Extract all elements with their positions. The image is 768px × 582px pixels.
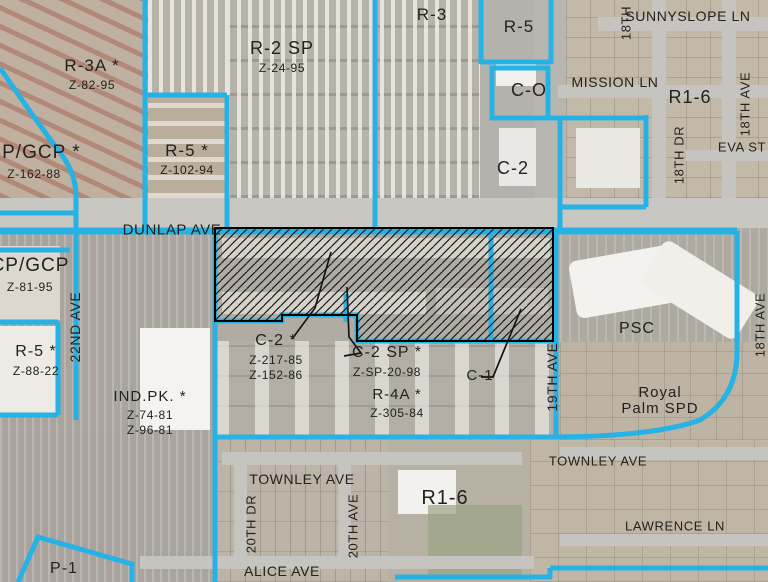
- zone-label-r-5-10: R-5 *Z-88-22: [13, 343, 59, 378]
- zone-name: IND.PK. *: [113, 389, 186, 405]
- street-label-townley-ave-10: TOWNLEY AVE: [249, 471, 354, 487]
- zone-name-line2: Palm SPD: [621, 401, 698, 417]
- street-label-22nd-ave-7: 22ND AVE: [67, 292, 83, 363]
- street-label-20th-ave-14: 20TH AVE: [346, 494, 361, 559]
- case-number: Z-152-86: [249, 368, 303, 383]
- zone-label-cp-gcp-9: CP/GCPZ-81-95: [0, 256, 69, 295]
- zone-name: R1-6: [421, 488, 468, 510]
- zone-name: C-O: [511, 81, 547, 100]
- case-number: Z-74-81: [113, 408, 186, 423]
- zone-name: C-1: [466, 368, 493, 384]
- street-label-mission-ln-2: MISSION LN: [572, 74, 659, 90]
- zone-case-numbers: Z-162-88: [0, 167, 81, 182]
- street-label-18th-1: 18TH: [619, 6, 634, 40]
- zone-case-numbers: Z-24-95: [250, 61, 314, 76]
- zone-name: R-5 *: [13, 343, 59, 360]
- map-labels: R-3A *Z-82-95CP/GCP *Z-162-88R-5 *Z-102-…: [0, 0, 768, 582]
- zone-label-c-2-7: C-2: [497, 159, 529, 178]
- zone-case-numbers: Z-102-94: [160, 163, 214, 178]
- zone-case-numbers: Z-88-22: [13, 364, 59, 379]
- zone-case-numbers: Z-305-84: [370, 406, 424, 421]
- zone-label-r-4a-14: R-4A *Z-305-84: [370, 387, 424, 421]
- zone-name: Royal: [621, 385, 698, 401]
- zone-name: R1-6: [668, 88, 711, 107]
- zone-case-numbers: Z-217-85Z-152-86: [249, 353, 303, 383]
- zone-name: R-3A *: [64, 57, 119, 75]
- zone-label-psc-16: PSC: [619, 320, 655, 337]
- street-label-sunnyslope-ln-0: SUNNYSLOPE LN: [625, 8, 750, 24]
- zone-name: CP/GCP: [0, 256, 69, 277]
- zone-label-r-3a-0: R-3A *Z-82-95: [64, 57, 119, 93]
- case-number: Z-82-95: [64, 78, 119, 93]
- street-label-19th-ave-8: 19TH AVE: [544, 342, 560, 411]
- case-number: Z-SP-20-98: [352, 365, 422, 380]
- zone-label-r-5-5: R-5: [504, 18, 534, 36]
- zone-name: P-1: [50, 560, 78, 577]
- zoning-map: R-3A *Z-82-95CP/GCP *Z-162-88R-5 *Z-102-…: [0, 0, 768, 582]
- zone-label-p-1-19: P-1: [50, 560, 78, 577]
- zone-name: PSC: [619, 320, 655, 337]
- case-number: Z-162-88: [0, 167, 81, 182]
- case-number: Z-102-94: [160, 163, 214, 178]
- zone-label-c-o-6: C-O: [511, 81, 547, 100]
- zone-name: C-2 SP *: [352, 344, 422, 361]
- street-label-eva-st-5: EVA ST: [718, 140, 766, 155]
- zone-label-r1-6-18: R1-6: [421, 488, 468, 510]
- street-label-dunlap-ave-6: DUNLAP AVE: [123, 222, 222, 239]
- zone-name: R-4A *: [370, 387, 424, 403]
- street-label-18th-ave-9: 18TH AVE: [753, 293, 768, 358]
- zone-label-c-2-sp-13: C-2 SP *Z-SP-20-98: [352, 344, 422, 379]
- street-label-townley-ave-11: TOWNLEY AVE: [549, 454, 647, 469]
- zone-label-cp-gcp-1: CP/GCP *Z-162-88: [0, 143, 81, 182]
- street-label-18th-dr-4: 18TH DR: [672, 126, 687, 184]
- zone-case-numbers: Z-SP-20-98: [352, 365, 422, 380]
- case-number: Z-88-22: [13, 364, 59, 379]
- zone-name: R-5 *: [160, 142, 214, 160]
- zone-case-numbers: Z-74-81Z-96-81: [113, 408, 186, 438]
- zone-case-numbers: Z-81-95: [0, 280, 69, 295]
- zone-name: R-2 SP: [250, 39, 314, 58]
- case-number: Z-81-95: [0, 280, 69, 295]
- street-label-18th-ave-3: 18TH AVE: [738, 72, 753, 137]
- street-label-20th-dr-13: 20TH DR: [244, 495, 259, 553]
- zone-name: R-5: [504, 18, 534, 36]
- zone-name: C-2: [497, 159, 529, 178]
- zone-name: C-2 *: [249, 332, 303, 349]
- street-label-lawrence-ln-12: LAWRENCE LN: [625, 519, 725, 534]
- zone-case-numbers: Z-82-95: [64, 78, 119, 93]
- zone-label-r-2-sp-3: R-2 SPZ-24-95: [250, 39, 314, 76]
- zone-name: CP/GCP *: [0, 143, 81, 164]
- case-number: Z-96-81: [113, 423, 186, 438]
- case-number: Z-217-85: [249, 353, 303, 368]
- zone-label-ind-pk-11: IND.PK. *Z-74-81Z-96-81: [113, 389, 186, 438]
- zone-name: R-3: [417, 6, 447, 24]
- zone-label-c-1-15: C-1: [466, 368, 493, 384]
- case-number: Z-24-95: [250, 61, 314, 76]
- zone-label-c-2-12: C-2 *Z-217-85Z-152-86: [249, 332, 303, 382]
- zone-label-r1-6-8: R1-6: [668, 88, 711, 107]
- zone-label-royal-17: RoyalPalm SPD: [621, 385, 698, 417]
- case-number: Z-305-84: [370, 406, 424, 421]
- zone-label-r-5-2: R-5 *Z-102-94: [160, 142, 214, 178]
- zone-label-r-3-4: R-3: [417, 6, 447, 24]
- street-label-alice-ave-15: ALICE AVE: [244, 563, 320, 579]
